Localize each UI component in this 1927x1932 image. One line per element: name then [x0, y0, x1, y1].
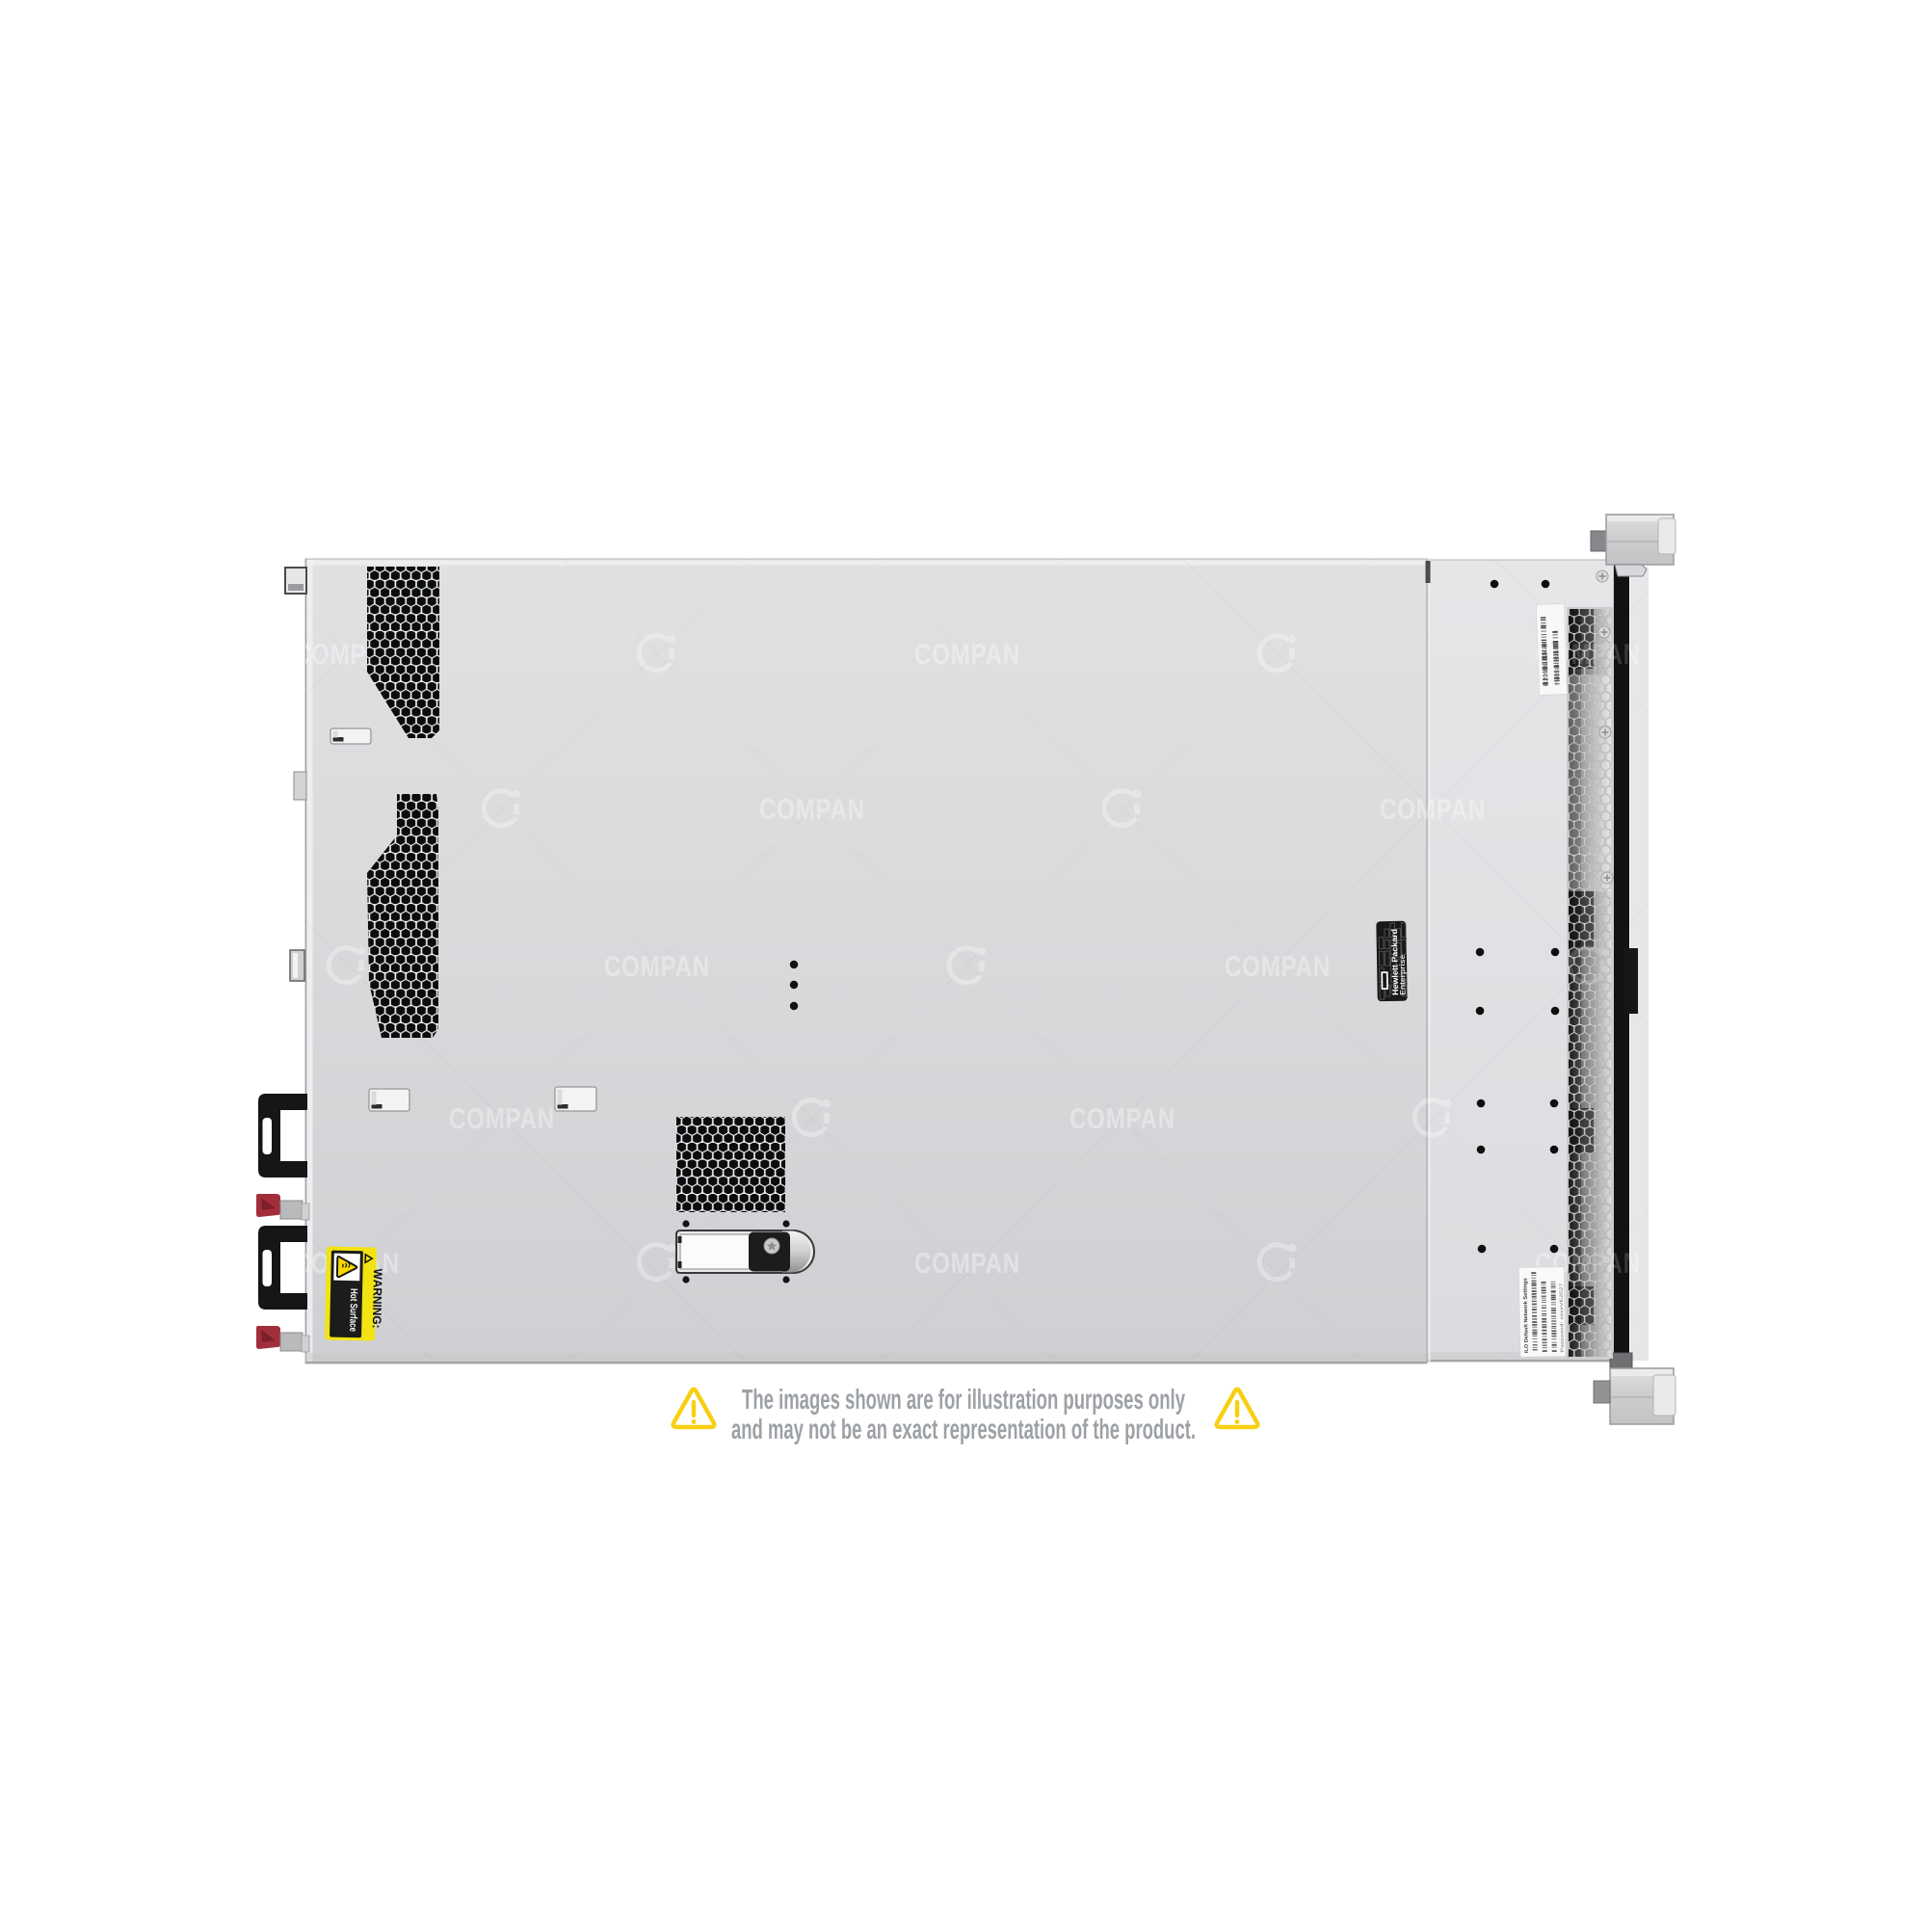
svg-text:The images shown are for illus: The images shown are for illustration pu… — [742, 1385, 1185, 1416]
svg-text:COMPAN: COMPAN — [604, 951, 710, 983]
svg-text:COMPAN: COMPAN — [1069, 1103, 1175, 1135]
svg-text:COMPAN: COMPAN — [759, 794, 865, 826]
svg-text:COMPAN: COMPAN — [449, 1103, 555, 1135]
svg-text:COMPAN: COMPAN — [914, 639, 1020, 671]
svg-text:and may not be an exact repres: and may not be an exact representation o… — [731, 1415, 1196, 1445]
svg-text:COMPAN: COMPAN — [1225, 951, 1331, 983]
svg-text:COMPAN: COMPAN — [914, 1248, 1020, 1280]
svg-text:COMPAN: COMPAN — [1380, 794, 1486, 826]
